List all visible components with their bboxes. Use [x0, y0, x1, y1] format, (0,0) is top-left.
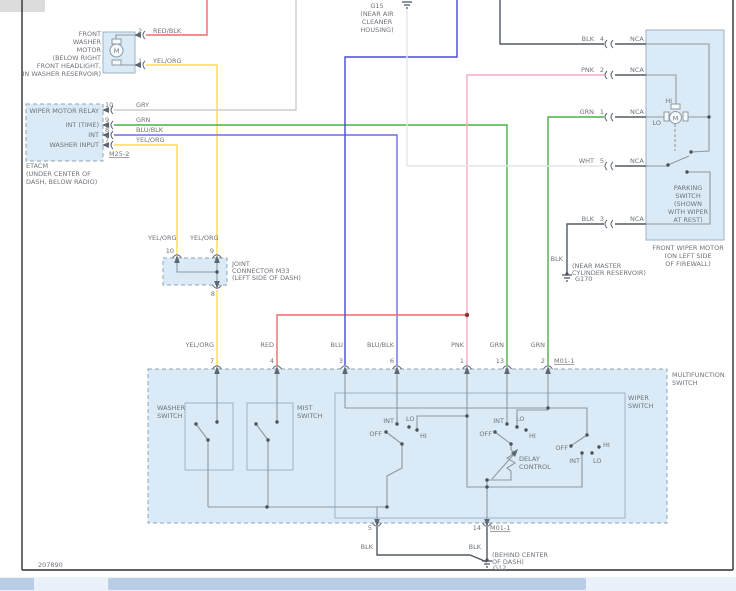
wiper-motor-letter: M	[673, 115, 679, 123]
wire-label-red-blk: RED/BLK	[153, 27, 182, 35]
wire-grn-lo	[548, 117, 604, 365]
washer-motor-letter: M	[114, 47, 120, 55]
etacm-caption-line2: (UNDER CENTER OF	[26, 170, 91, 178]
mf-pin-6: 6	[390, 357, 394, 365]
m33-caption-line3: (LEFT SIDE OF DASH)	[232, 274, 301, 282]
etacm-pin-10: 10	[105, 101, 113, 109]
mf-pin-2: 2	[541, 357, 545, 365]
wiper-motor-wire-blk4: BLK	[582, 35, 595, 43]
wire-red-splice	[277, 315, 467, 365]
parking-switch-caption-line3: (SHOWN	[674, 200, 702, 208]
wiper-motor-wire-pnk: PNK	[581, 66, 595, 74]
g170-ground-icon	[562, 272, 572, 281]
sw3-lo-label: LO	[593, 457, 602, 465]
m33-wire-label-right: YEL/ORG	[189, 234, 219, 242]
washer-motor-caption-line2: WASHER	[73, 38, 102, 46]
mf-pin-13: 13	[496, 357, 504, 365]
wire-blu-blk	[114, 135, 397, 365]
wiper-motor-pin-3: 3	[600, 215, 604, 223]
sw1-hi-label: HI	[420, 432, 427, 440]
mist-switch-label-line1: MIST	[297, 404, 313, 412]
mf-connector-id-top: M01-1	[554, 357, 574, 365]
sw3-off-label: OFF	[555, 444, 568, 452]
etacm-row-washer-input: WASHER INPUT	[49, 141, 99, 149]
washer-motor-brush-top	[112, 39, 121, 44]
scrollbar-thumb[interactable]	[108, 578, 586, 590]
wiper-switch-label-line2: SWITCH	[628, 402, 654, 410]
wiper-switch-label-line1: WIPER	[628, 394, 649, 402]
mf-pin-7: 7	[210, 357, 214, 365]
sw2-int-label: INT	[493, 417, 504, 425]
splice-dot	[465, 313, 469, 317]
washer-motor-pin-1: 1	[138, 57, 142, 65]
mf-switch-caption-line1: MULTIFUNCTION	[672, 371, 725, 379]
wire-label-gry: GRY	[136, 101, 149, 109]
mf-wire-label-yel-org: YEL/ORG	[184, 341, 214, 349]
wire-gry	[114, 0, 296, 110]
washer-motor-pin-2: 2	[138, 27, 142, 35]
wiper-motor-pin-4: 4	[600, 35, 604, 43]
connector-inline-pin1	[605, 113, 613, 121]
etacm-pin-9: 9	[105, 116, 109, 124]
wire-yel-org-washer	[146, 65, 217, 254]
mf-pin-5: 5	[368, 524, 372, 532]
wire-blu	[345, 0, 457, 365]
wiper-motor-lo-label: LO	[652, 119, 661, 127]
parking-switch-caption-line4: WITH WIPER	[668, 208, 709, 216]
delay-control-label-line1: DELAY	[519, 455, 540, 463]
wire-label-grn-1: GRN	[136, 116, 151, 124]
multifunction-switch-box	[148, 369, 667, 523]
g15-caption-line2: CLEANER	[362, 18, 393, 26]
connector-inline-pin3	[605, 220, 613, 228]
g12-label: G12	[493, 564, 506, 572]
washer-switch-label-line2: SWITCH	[157, 412, 183, 420]
wire-label-yel-org-2: YEL/ORG	[135, 136, 165, 144]
etacm-row-wiper-motor-relay: WIPER MOTOR RELAY	[29, 107, 99, 115]
sw1-lo-label: LO	[406, 415, 415, 423]
sw3-int-label: INT	[569, 457, 580, 465]
mf-wire-label-blu-blk: BLU/BLK	[367, 341, 395, 349]
wiper-motor-pin-1: 1	[600, 108, 604, 116]
mf-pin-3: 3	[339, 357, 343, 365]
wiper-motor-brush-left	[664, 112, 669, 121]
mf-wire-label-pnk: PNK	[451, 341, 465, 349]
wire-grn-int-time	[114, 125, 507, 365]
wiper-motor-caption-line3: OF FIREWALL)	[665, 260, 711, 268]
g170-label: G170	[575, 275, 592, 283]
sw2-lo-label: LO	[516, 415, 525, 423]
wiper-motor-pin-2: 2	[600, 66, 604, 74]
wiper-motor-terminal-top	[671, 104, 680, 109]
wire-label-blu-blk-1: BLU/BLK	[136, 126, 164, 134]
wiper-motor-wire-wht: WHT	[579, 157, 594, 165]
mf-wire-label-red: RED	[260, 341, 274, 349]
sw1-int-label: INT	[383, 417, 394, 425]
sw2-off-label: OFF	[479, 430, 492, 438]
sw3-hi-label: HI	[603, 441, 610, 449]
m33-pin-10: 10	[166, 247, 174, 255]
etacm-row-int-time: INT (TIME)	[66, 121, 100, 129]
wiper-motor-caption-line2: (ON LEFT SIDE	[664, 252, 711, 260]
g15-label: G15	[370, 2, 383, 10]
m33-wire-label-left: YEL/ORG	[147, 234, 177, 242]
g12-ground-icon	[482, 558, 492, 567]
washer-motor-caption-line3: MOTOR	[77, 46, 102, 54]
sw1-off-label: OFF	[369, 430, 382, 438]
delay-control-label-line2: CONTROL	[519, 463, 551, 471]
g15-caption-line3: HOUSING)	[360, 26, 393, 34]
g15-ground-icon	[402, 2, 412, 8]
connector-inline-pin2	[605, 71, 613, 79]
wiper-motor-caption-line1: FRONT WIPER MOTOR	[652, 244, 724, 252]
washer-motor-brush-bottom	[112, 60, 121, 65]
etacm-row-int: INT	[88, 131, 99, 139]
mf-pin-4: 4	[270, 357, 274, 365]
m33-pin-8: 8	[211, 290, 215, 298]
parking-switch-caption-line5: AT REST)	[673, 216, 702, 224]
wiper-motor-brush-right	[683, 112, 688, 121]
g12-wire-label-left: BLK	[361, 543, 374, 551]
nca-label-5: NCA	[630, 215, 644, 223]
nca-label-1: NCA	[630, 35, 644, 43]
parking-switch-caption-line1: PARKING	[674, 184, 703, 192]
scrollbar-left-button[interactable]	[0, 578, 34, 590]
wiper-motor-wire-grn: GRN	[580, 108, 595, 116]
connector-inline-pin4	[605, 40, 613, 48]
mf-wire-label-blu: BLU	[330, 341, 343, 349]
washer-motor-caption-line1: FRONT	[79, 30, 101, 38]
g12-wire-label-right: BLK	[469, 543, 482, 551]
washer-motor-caption-line4: (BELOW RIGHT	[53, 54, 101, 62]
mf-connector-id-bottom: M01-1	[490, 524, 510, 532]
mf-wire-label-grn-2: GRN	[531, 341, 546, 349]
nca-label-2: NCA	[630, 66, 644, 74]
nca-label-4: NCA	[630, 157, 644, 165]
etacm-connector-id: M25-2	[109, 150, 129, 158]
connector-inline-pin5	[605, 162, 613, 170]
etacm-caption-line1: ETACM	[26, 162, 48, 170]
mf-switch-caption-line2: SWITCH	[672, 379, 698, 387]
mf-pin-14: 14	[473, 524, 481, 532]
wiper-motor-hi-label: HI	[665, 97, 672, 105]
wire-label-yel-org-1: YEL/ORG	[152, 57, 182, 65]
document-number: 207890	[38, 561, 63, 569]
washer-motor-caption-line5: FRONT HEADLIGHT,	[37, 62, 101, 70]
wiring-diagram: FRONTWASHERMOTOR(BELOW RIGHTFRONT HEADLI…	[0, 0, 736, 591]
nca-label-3: NCA	[630, 108, 644, 116]
mf-pin-1: 1	[460, 357, 464, 365]
wiper-motor-wire-blk3: BLK	[582, 215, 595, 223]
etacm-caption-line3: DASH, BELOW RADIO)	[26, 178, 97, 186]
wiper-motor-pin-5: 5	[600, 157, 604, 165]
washer-motor-caption-line6: IN WASHER RESERVOIR)	[22, 70, 101, 78]
washer-switch-label-line1: WASHER	[157, 404, 186, 412]
m33-pin-9: 9	[210, 247, 214, 255]
sw2-hi-label: HI	[529, 432, 536, 440]
etacm-pin-7: 7	[105, 136, 109, 144]
g170-wire-label: BLK	[551, 255, 564, 263]
mf-wire-label-grn-13: GRN	[490, 341, 505, 349]
mist-switch-label-line2: SWITCH	[297, 412, 323, 420]
g15-caption-line1: (NEAR AIR	[360, 10, 394, 18]
wire-wht-g15	[407, 9, 604, 166]
horizontal-scrollbar	[0, 577, 736, 591]
etacm-pin-8: 8	[105, 126, 109, 134]
parking-switch-caption-line2: SWITCH	[675, 192, 701, 200]
